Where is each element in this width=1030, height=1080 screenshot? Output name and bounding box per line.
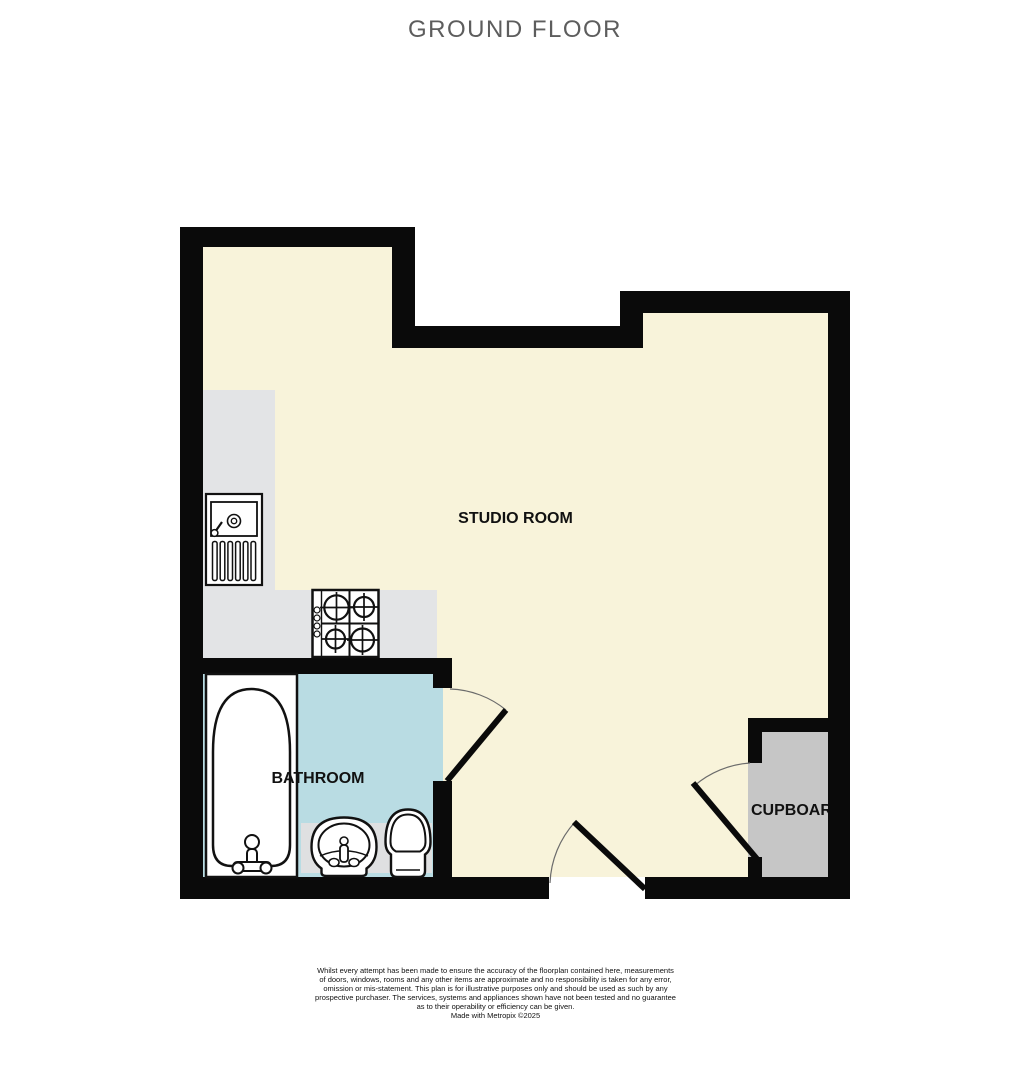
toilet-icon — [386, 810, 431, 878]
room-label-studio: STUDIO ROOM — [458, 510, 573, 527]
wall-left — [180, 227, 203, 899]
disclaimer-line: omission or mis-statement. This plan is … — [180, 984, 811, 993]
room-label-bathroom: BATHROOM — [271, 770, 364, 787]
disclaimer-line: of doors, windows, rooms and any other i… — [180, 975, 811, 984]
wall-cupboard-stub-top — [748, 732, 762, 763]
floorplan-canvas: CUPBOARD — [0, 0, 1030, 1080]
disclaimer-line: Whilst every attempt has been made to en… — [180, 966, 811, 975]
floorplan-page: { "title": "GROUND FLOOR", "plan": { "ro… — [0, 0, 1030, 1080]
wall-cupboard-top — [748, 718, 828, 732]
wall-top-a — [180, 227, 415, 247]
hob-icon — [313, 590, 379, 657]
disclaimer-line: prospective purchaser. The services, sys… — [180, 993, 811, 1002]
wall-bathroom-stub-top — [433, 658, 452, 688]
credit: Made with Metropix ©2025 — [180, 1011, 811, 1020]
wall-notch-south — [392, 326, 643, 348]
wall-bathroom-right — [433, 781, 452, 877]
disclaimer: Whilst every attempt has been made to en… — [180, 966, 811, 1020]
wall-bottom-right — [645, 877, 850, 899]
wall-bottom-left — [180, 877, 549, 899]
disclaimer-line: as to their operability or efficiency ca… — [180, 1002, 811, 1011]
wall-right — [828, 291, 850, 899]
wall-bathroom-top — [203, 658, 452, 674]
pedestal-basin-icon — [312, 818, 377, 877]
wall-top-b — [620, 291, 850, 313]
kitchen-sink-icon — [206, 494, 262, 585]
